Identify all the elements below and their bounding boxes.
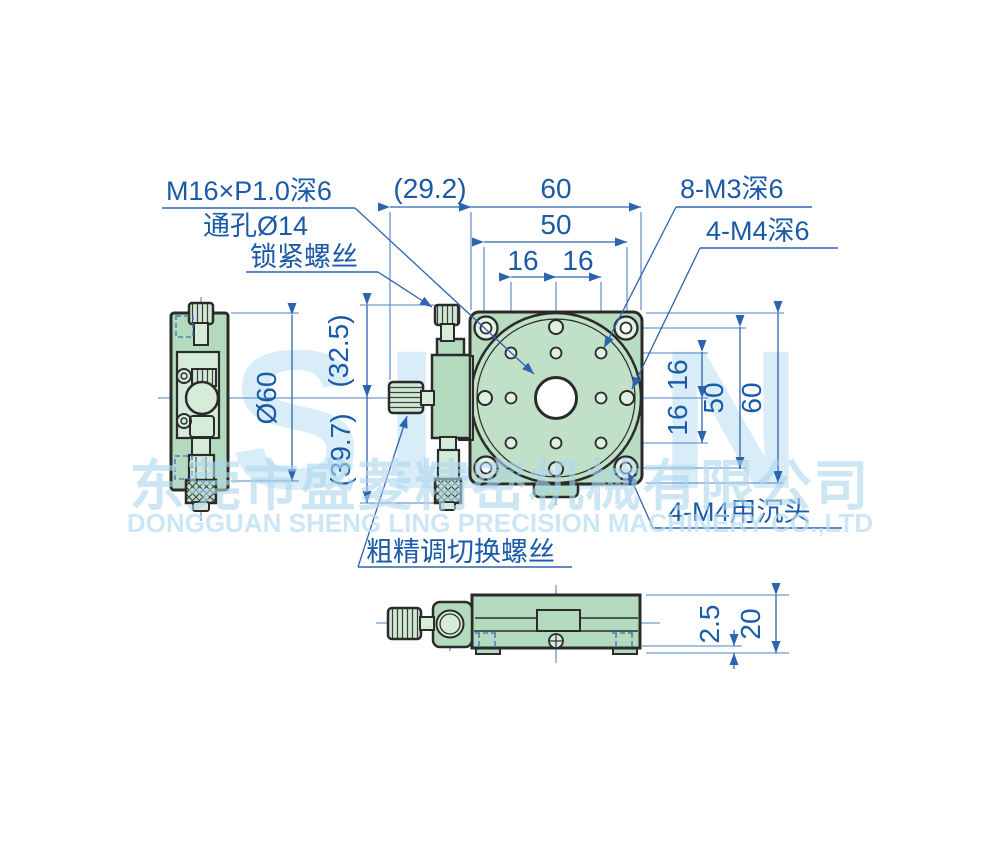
dim-pitch-w2: 16 [562, 245, 593, 276]
dim-pitch-w1: 16 [507, 245, 538, 276]
bottom-view-knob [388, 608, 421, 639]
dim-offset-w: (29.2) [393, 173, 466, 204]
label-thread-spec: M16×P1.0深6 [166, 176, 332, 206]
technical-drawing-svg: SLJN [0, 0, 1001, 853]
dim-total-w: 60 [540, 173, 571, 204]
dim-pitch-h1: 16 [662, 359, 693, 390]
bottom-view [388, 595, 640, 654]
label-lock-screw: 锁紧螺丝 [250, 242, 358, 272]
label-through-hole: 通孔Ø14 [203, 211, 308, 241]
dim-platform-dia: Ø60 [251, 372, 282, 425]
watermark-company-en: DONGGUAN SHENG LING PRECISION MACHINERY … [127, 508, 873, 538]
dim-pitch-h2: 16 [662, 404, 693, 435]
dim-base-thickness: 20 [735, 608, 766, 639]
label-coarse-fine-switch: 粗精调切换螺丝 [366, 537, 555, 567]
side-view-lock-knob [189, 303, 213, 324]
coarse-fine-switch-knob [389, 382, 423, 413]
dim-base-step: 2.5 [694, 605, 725, 644]
dim-bolt-span-h: 50 [698, 382, 729, 413]
dim-bolt-span-w: 50 [540, 209, 571, 240]
lock-screw-knob [435, 305, 459, 325]
dim-total-h: 60 [736, 382, 767, 413]
center-through-hole [536, 378, 577, 419]
label-m4-holes: 4-M4深6 [706, 216, 810, 246]
label-m3-holes: 8-M3深6 [680, 174, 784, 204]
dim-upper-h: (32.5) [323, 314, 354, 387]
side-view-knob-end [186, 382, 218, 414]
technical-drawing-page: SLJN [0, 0, 1001, 853]
